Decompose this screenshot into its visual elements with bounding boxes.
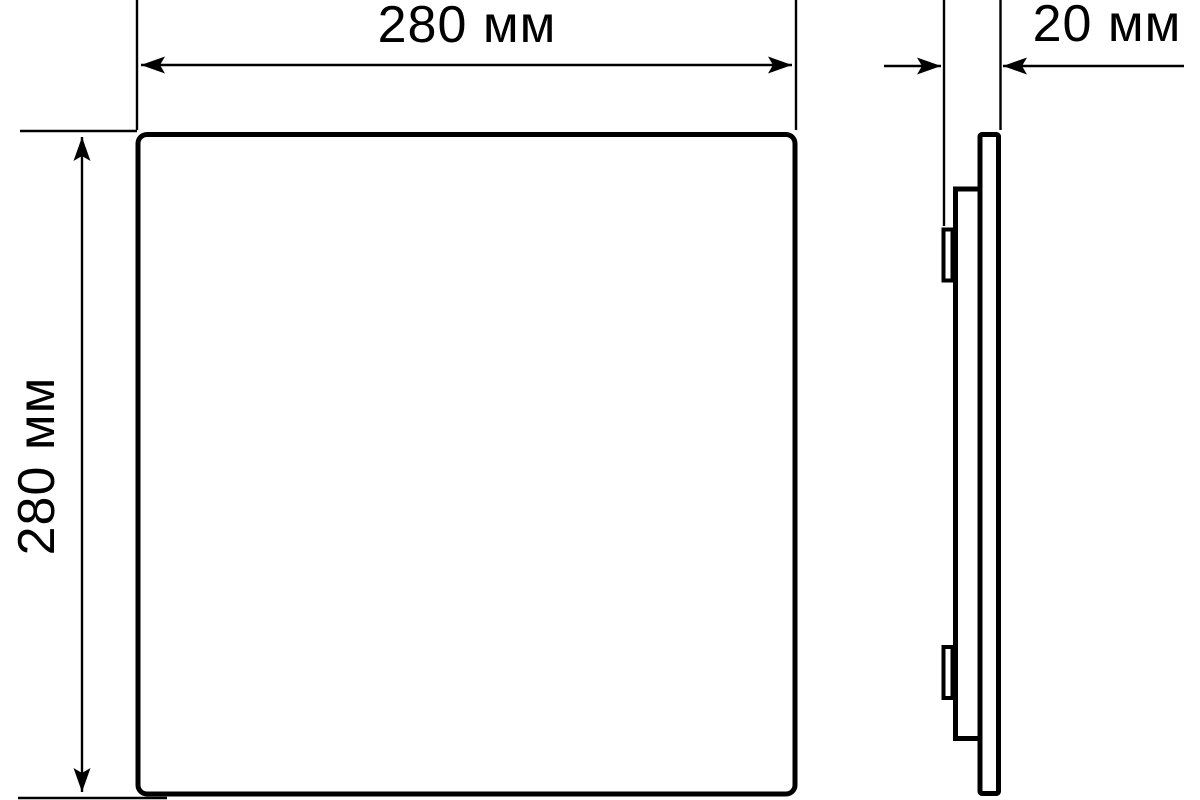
depth-dimension-label: 20 мм bbox=[1033, 0, 1182, 53]
width-dimension-label: 280 мм bbox=[378, 0, 557, 54]
panel-dimension-drawing: 280 мм 280 мм 20 мм bbox=[0, 0, 1200, 800]
mount-clip-upper bbox=[944, 230, 953, 281]
side-view: 20 мм bbox=[884, 0, 1184, 794]
technical-drawing-canvas: 280 мм 280 мм 20 мм bbox=[0, 0, 1200, 800]
mount-clip-lower bbox=[944, 647, 953, 698]
front-view: 280 мм 280 мм bbox=[8, 0, 796, 798]
panel-back-plate bbox=[956, 189, 980, 739]
height-dimension-label: 280 мм bbox=[8, 377, 66, 556]
panel-front-face bbox=[138, 135, 795, 795]
panel-side-profile bbox=[980, 135, 999, 794]
